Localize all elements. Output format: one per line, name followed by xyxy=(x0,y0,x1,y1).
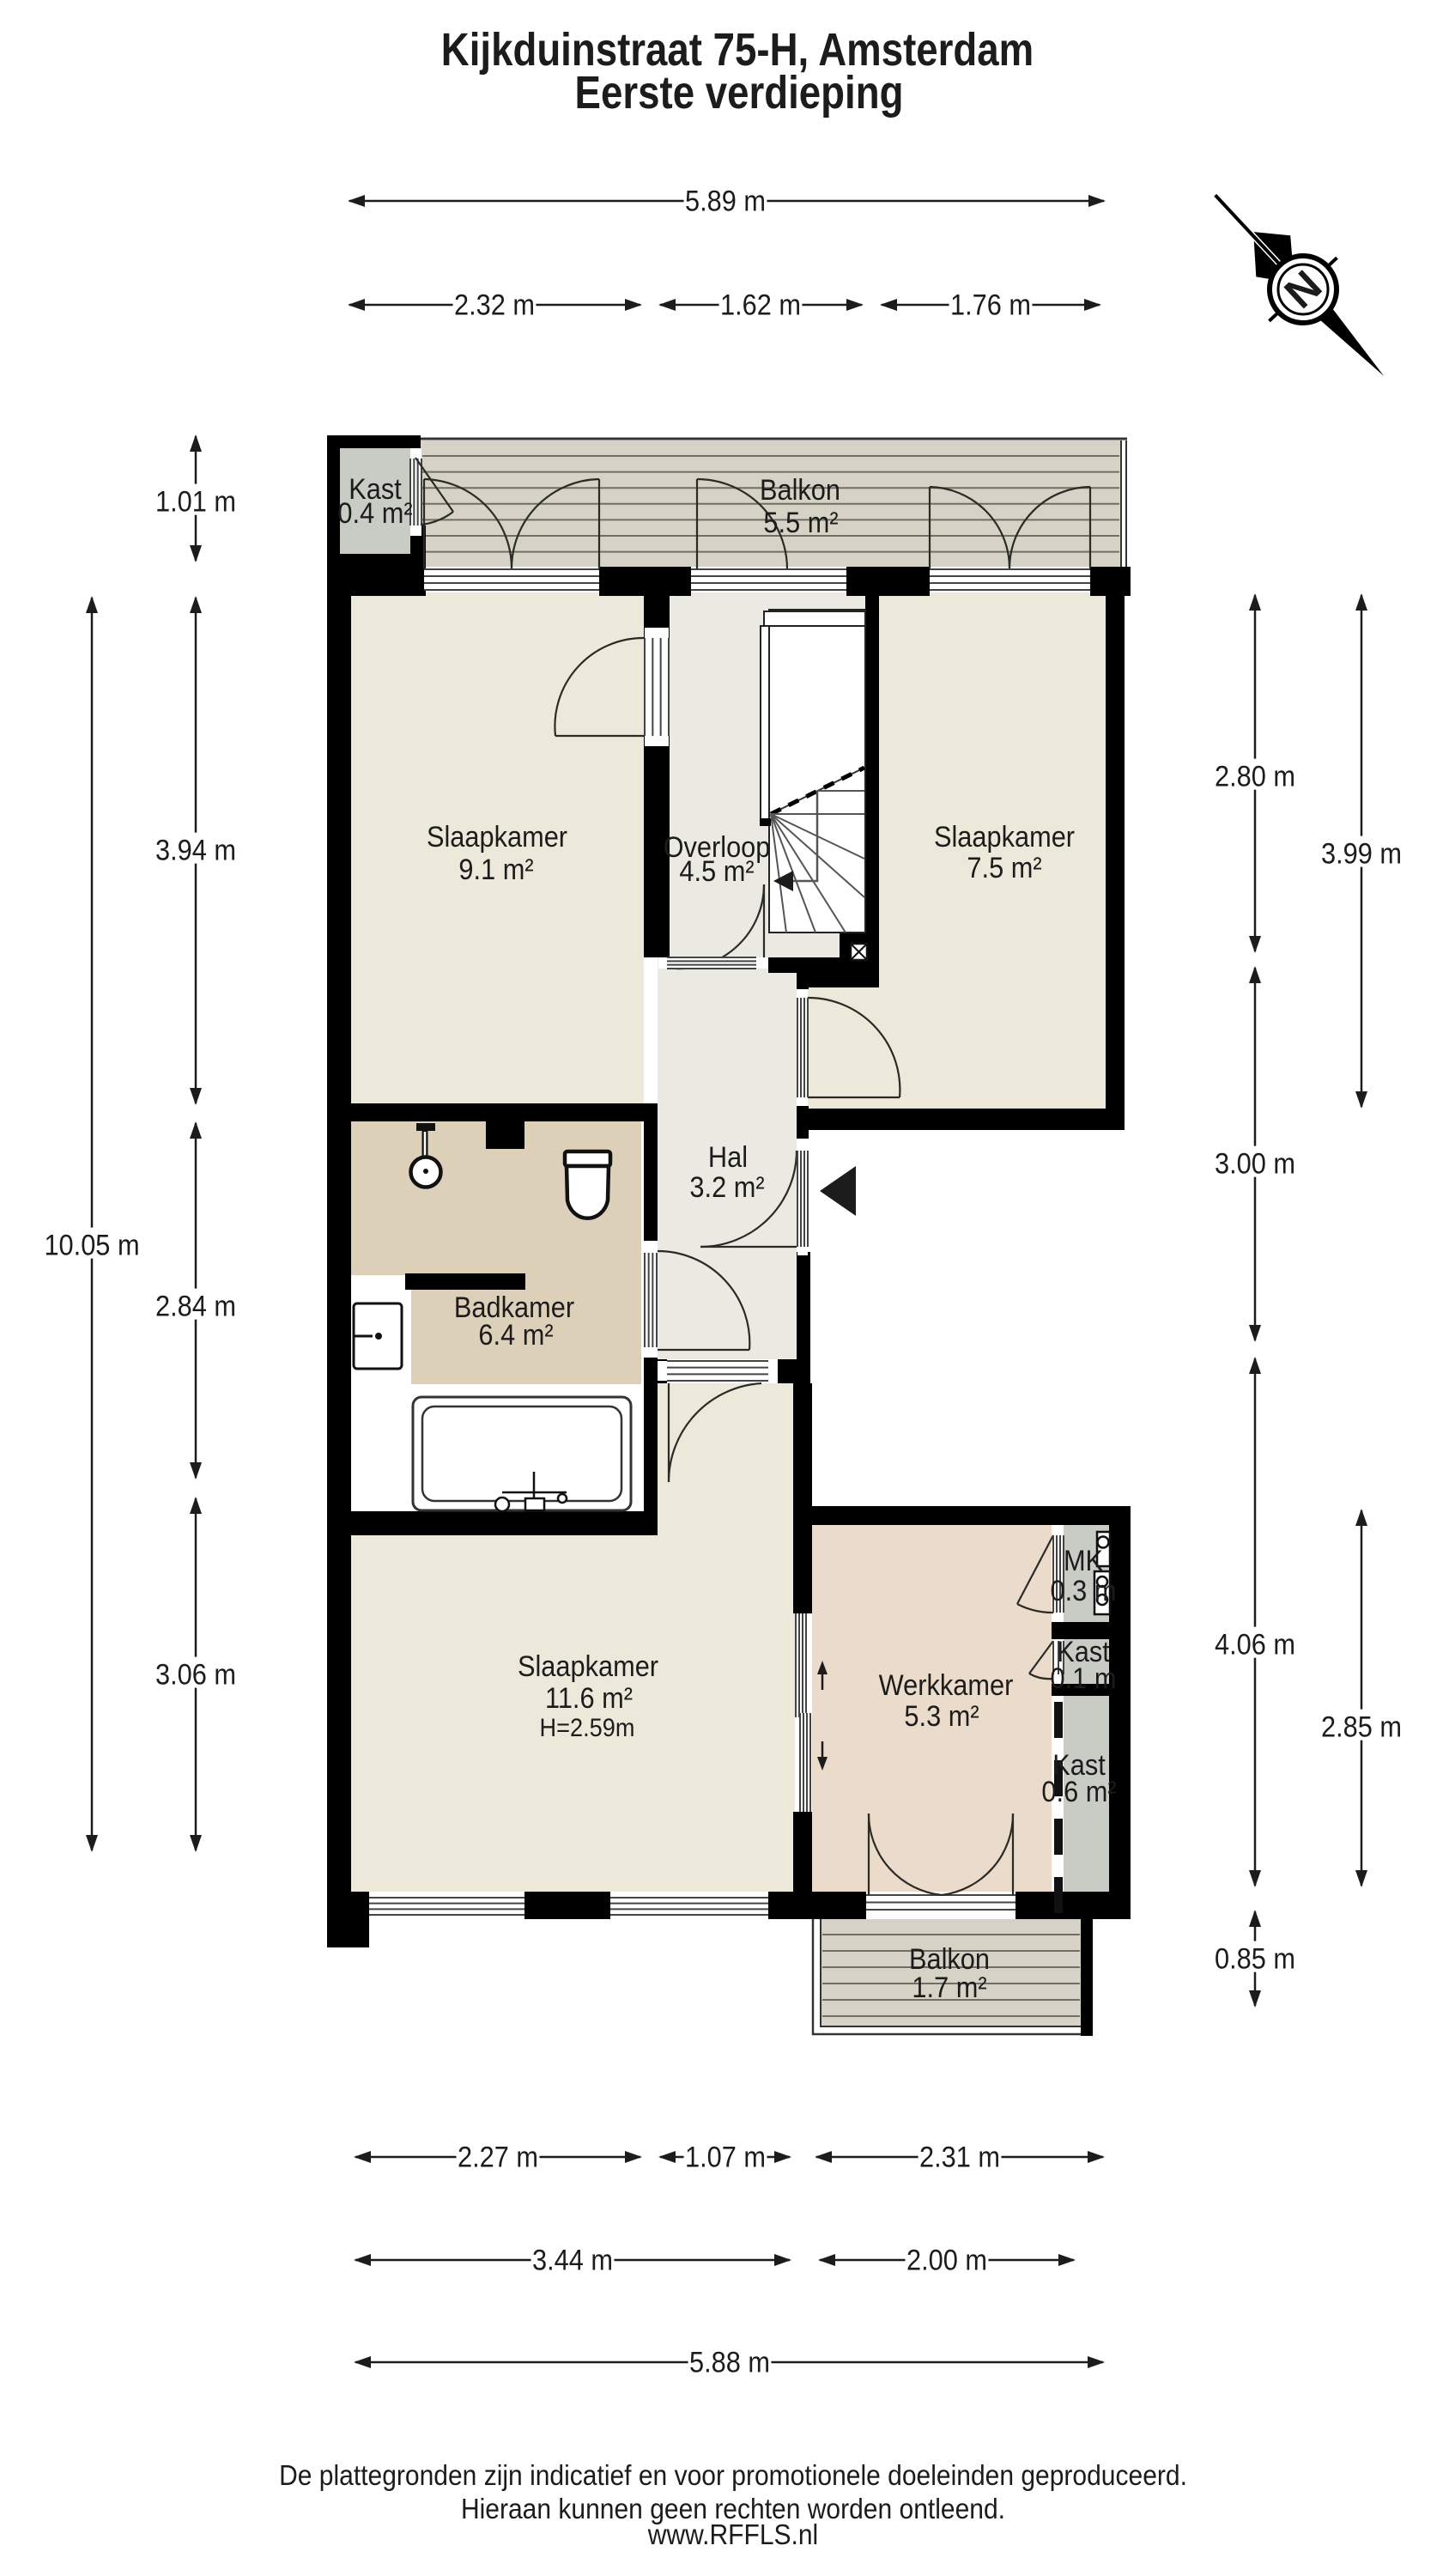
svg-text:Slaapkamer: Slaapkamer xyxy=(427,821,567,854)
svg-text:0.6 m²: 0.6 m² xyxy=(1041,1776,1116,1808)
svg-text:10.05 m: 10.05 m xyxy=(44,1229,139,1261)
svg-text:www.RFFLS.nl: www.RFFLS.nl xyxy=(647,2518,818,2551)
svg-text:2.85 m: 2.85 m xyxy=(1321,1710,1402,1743)
svg-text:2.32 m: 2.32 m xyxy=(454,289,535,321)
svg-text:5.3 m²: 5.3 m² xyxy=(904,1700,979,1733)
svg-text:0.3 m: 0.3 m xyxy=(1051,1575,1117,1607)
svg-text:2.00 m: 2.00 m xyxy=(906,2244,987,2276)
svg-text:0.85 m: 0.85 m xyxy=(1215,1942,1295,1975)
svg-text:1.01 m: 1.01 m xyxy=(155,485,236,518)
svg-text:2.31 m: 2.31 m xyxy=(919,2141,1000,2173)
svg-text:Slaapkamer: Slaapkamer xyxy=(934,821,1075,854)
svg-text:5.88 m: 5.88 m xyxy=(689,2346,770,2379)
svg-text:9.1 m²: 9.1 m² xyxy=(458,854,533,886)
svg-text:Eerste verdieping: Eerste verdieping xyxy=(575,66,904,118)
svg-text:1.76 m: 1.76 m xyxy=(950,289,1031,321)
svg-text:0.1 m: 0.1 m xyxy=(1051,1662,1117,1695)
svg-text:0.4 m²: 0.4 m² xyxy=(337,497,412,530)
svg-text:4.06 m: 4.06 m xyxy=(1215,1628,1295,1661)
svg-text:2.27 m: 2.27 m xyxy=(458,2141,538,2173)
svg-text:1.7 m²: 1.7 m² xyxy=(912,1971,986,2004)
svg-text:2.80 m: 2.80 m xyxy=(1215,760,1295,793)
svg-text:2.84 m: 2.84 m xyxy=(155,1290,236,1322)
svg-text:3.06 m: 3.06 m xyxy=(155,1658,236,1691)
svg-text:3.00 m: 3.00 m xyxy=(1215,1147,1295,1180)
svg-text:3.94 m: 3.94 m xyxy=(155,834,236,866)
svg-text:6.4 m²: 6.4 m² xyxy=(478,1319,553,1352)
svg-text:Slaapkamer: Slaapkamer xyxy=(518,1650,658,1683)
svg-text:Werkkamer: Werkkamer xyxy=(879,1669,1014,1702)
svg-text:Balkon: Balkon xyxy=(760,474,840,507)
svg-text:De plattegronden zijn indicati: De plattegronden zijn indicatief en voor… xyxy=(279,2459,1187,2492)
svg-text:4.5 m²: 4.5 m² xyxy=(679,855,754,888)
svg-text:5.5 m²: 5.5 m² xyxy=(763,507,838,539)
svg-text:11.6 m²: 11.6 m² xyxy=(545,1682,633,1715)
svg-text:1.07 m: 1.07 m xyxy=(685,2141,766,2173)
svg-text:1.62 m: 1.62 m xyxy=(720,289,801,321)
svg-text:5.89 m: 5.89 m xyxy=(685,185,766,217)
svg-text:3.2 m²: 3.2 m² xyxy=(689,1171,764,1204)
svg-text:Hal: Hal xyxy=(708,1141,748,1174)
svg-text:MK: MK xyxy=(1064,1545,1103,1577)
svg-text:3.99 m: 3.99 m xyxy=(1321,837,1402,870)
svg-text:7.5 m²: 7.5 m² xyxy=(967,852,1041,884)
svg-text:3.44 m: 3.44 m xyxy=(532,2244,613,2276)
svg-text:H=2.59m: H=2.59m xyxy=(540,1714,635,1743)
